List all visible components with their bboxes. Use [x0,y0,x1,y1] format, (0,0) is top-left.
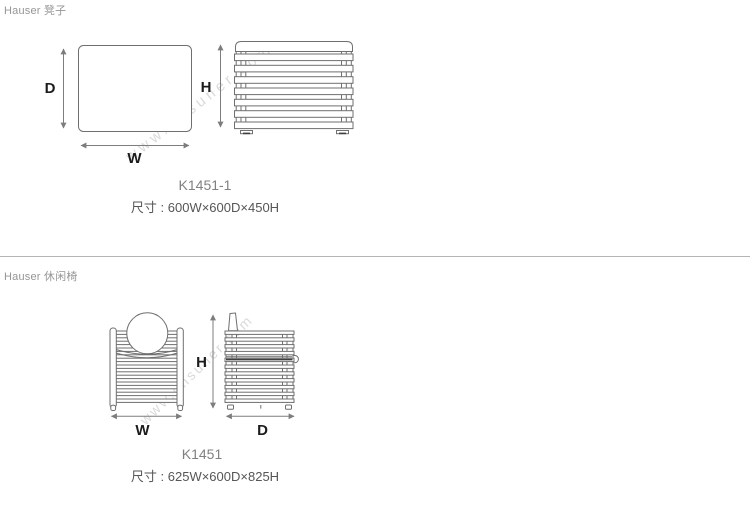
stool-slat [235,99,354,106]
chair-depth-dimension: D [227,416,295,439]
depth-label: D [257,422,268,439]
model-number-stool: K1451-1 [55,177,355,193]
chair-side-foot [286,405,292,409]
chair-side-slat [225,372,294,375]
stool-slat [235,65,354,72]
chair-slat [113,372,181,375]
chair-side-view [225,313,298,409]
width-label: W [135,422,150,439]
chair-slat [113,392,181,395]
chair-side-slat [225,379,294,382]
stool-front-view [235,42,354,134]
dimensions-text-stool: 尺寸 : 600W×600D×450H [55,197,355,216]
section-divider [0,256,750,257]
chair-foot [111,405,116,410]
chair-side-slat [225,338,294,341]
chair-side-slat [225,392,294,395]
chair-slat [113,385,181,388]
section-title-lounge-chair: Hauser 休闲椅 [4,268,78,284]
stool-slat [235,111,354,118]
chair-slat [113,379,181,382]
chair-back-post [229,313,238,331]
chair-side-slat [225,351,294,354]
chair-left-post [110,328,116,408]
height-label: H [196,354,207,371]
stool-height-dimension: H [201,45,221,127]
chair-side-slat [225,399,294,402]
stool-slat [235,88,354,95]
chair-side-slat [225,385,294,388]
chair-width-dimension: W [112,416,182,439]
model-number-lounge-chair: K1451 [52,446,352,462]
stool-slat [235,54,354,61]
stool-slat [235,77,354,84]
chair-slat [113,399,181,402]
stool-width-dimension: W [81,146,189,168]
stool-diagram: D W H [0,0,750,230]
stool-cushion [236,42,353,52]
chair-side-slat [225,365,294,368]
chair-slat [113,358,181,361]
stool-depth-dimension: D [45,49,64,128]
depth-label: D [45,80,56,97]
chair-right-post [177,328,183,408]
chair-front-view [110,313,183,411]
chair-round-cushion [127,313,168,354]
chair-side-slat [225,331,294,334]
stool-slat [235,122,354,129]
chair-height-dimension: H [196,315,213,408]
chair-slat [113,365,181,368]
chair-side-foot [228,405,234,409]
stool-top-view [79,46,192,132]
chair-foot [178,405,183,410]
width-label: W [127,150,142,167]
dimensions-text-lounge-chair: 尺寸 : 625W×600D×825H [55,466,355,485]
height-label: H [201,79,212,96]
chair-side-slat [225,345,294,348]
stool-top-outline [79,46,192,132]
